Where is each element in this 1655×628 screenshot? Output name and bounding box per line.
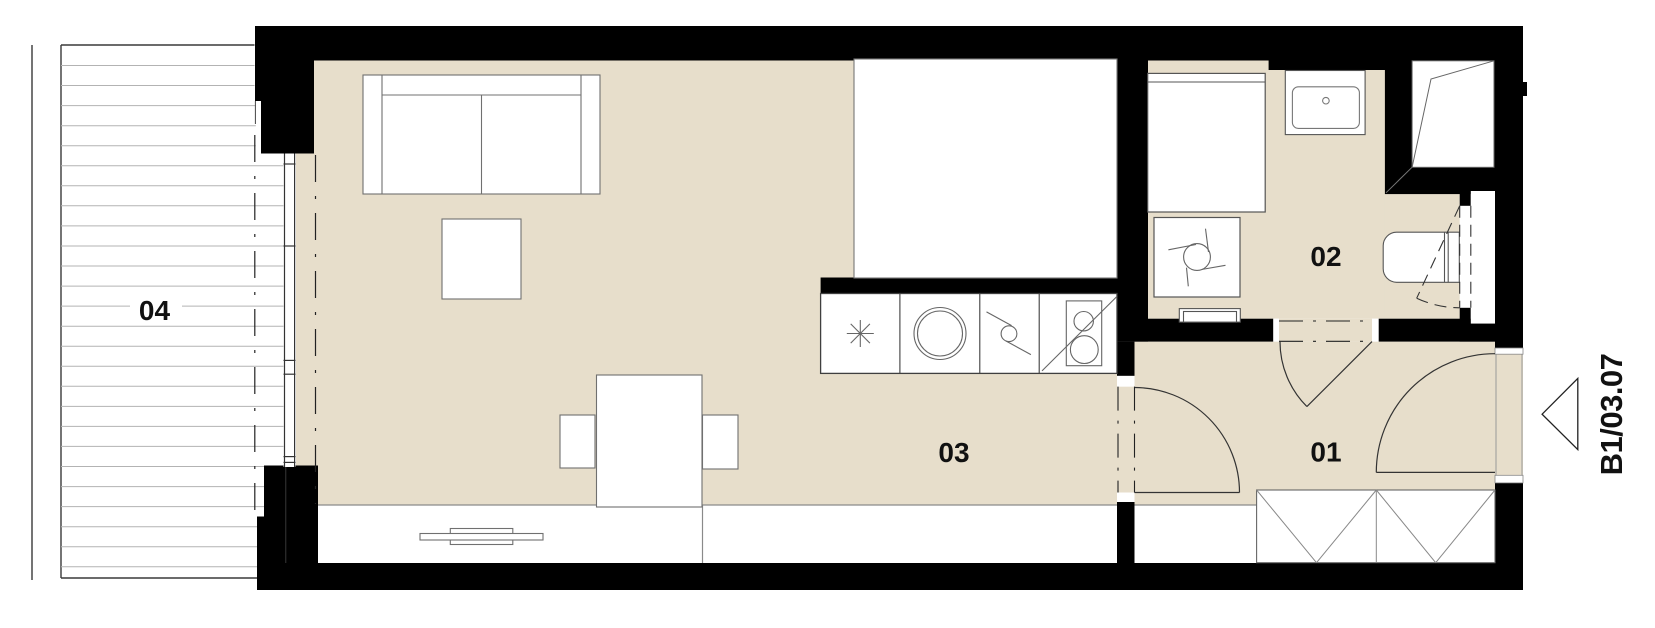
svg-text:04: 04: [139, 295, 171, 326]
svg-text:B1/03.07: B1/03.07: [1594, 354, 1629, 476]
svg-text:01: 01: [1310, 437, 1341, 468]
svg-text:03: 03: [938, 437, 969, 468]
svg-text:02: 02: [1310, 241, 1341, 272]
